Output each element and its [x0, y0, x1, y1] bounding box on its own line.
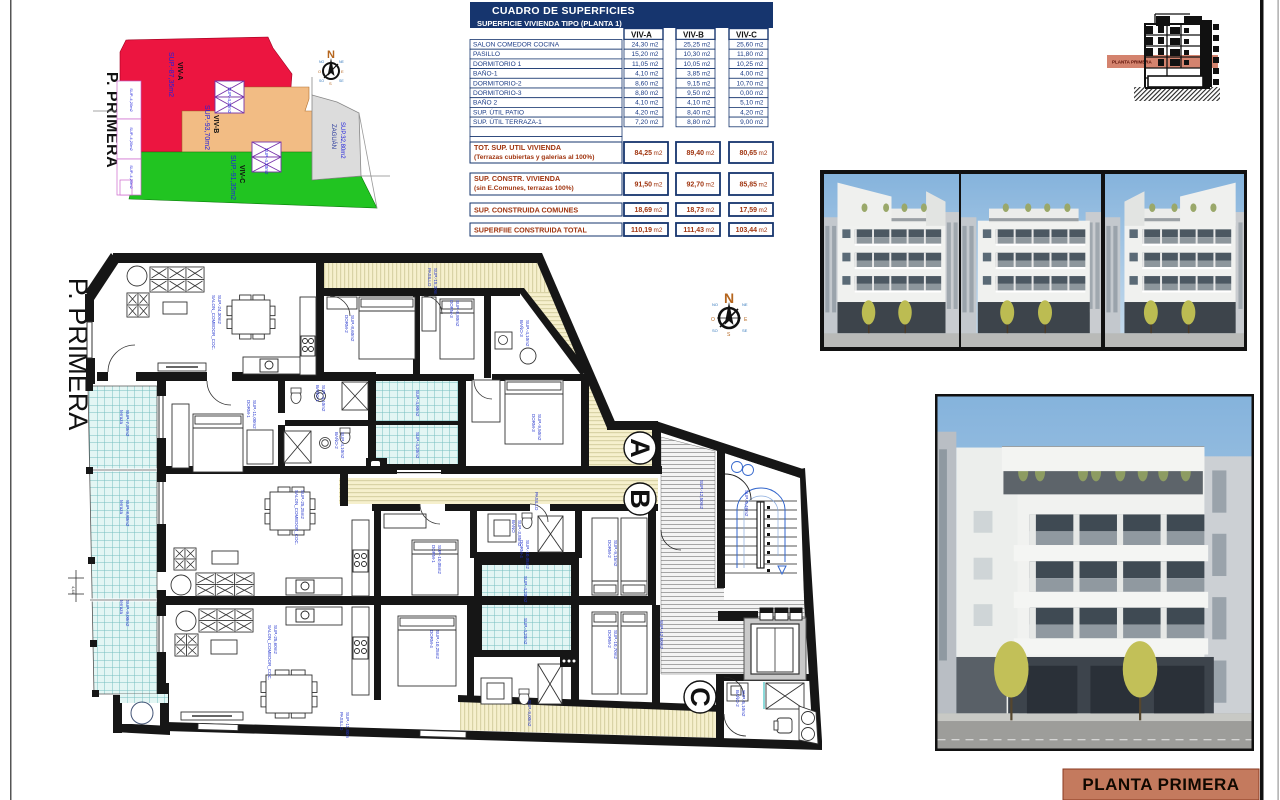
- svg-text:m2: m2: [755, 120, 764, 126]
- svg-text:0,00: 0,00: [740, 90, 753, 97]
- svg-text:SUP. CONSTRUIDA COMUNES: SUP. CONSTRUIDA COMUNES: [474, 206, 578, 215]
- svg-text:DORM-4: DORM-4: [429, 630, 434, 648]
- svg-text:A: A: [625, 438, 655, 458]
- svg-text:m2: m2: [706, 207, 715, 214]
- svg-text:SUP.-8,80m2: SUP.-8,80m2: [455, 300, 460, 327]
- svg-text:15,20: 15,20: [631, 51, 648, 58]
- svg-text:BAÑO: BAÑO: [511, 520, 517, 533]
- svg-text:SUP.-9,50m2: SUP.-9,50m2: [537, 414, 542, 441]
- svg-text:SUP.-12,50m2: SUP.-12,50m2: [659, 620, 664, 649]
- svg-text:24,30: 24,30: [631, 42, 648, 49]
- svg-text:SUP.-8,60m2: SUP.-8,60m2: [350, 315, 355, 342]
- svg-text:m2: m2: [706, 227, 715, 234]
- svg-text:BAÑO-2: BAÑO-2: [334, 432, 340, 449]
- svg-text:O: O: [318, 69, 321, 74]
- svg-text:B: B: [625, 489, 655, 509]
- svg-text:SUP.32,80m2: SUP.32,80m2: [339, 122, 345, 159]
- svg-text:18,69: 18,69: [634, 207, 652, 214]
- svg-text:m2: m2: [702, 43, 711, 49]
- svg-text:DORM-1: DORM-1: [246, 400, 251, 418]
- svg-text:m2: m2: [650, 62, 659, 68]
- svg-text:VIV-A: VIV-A: [631, 31, 652, 40]
- svg-text:4,00: 4,00: [740, 71, 753, 78]
- svg-text:BAÑO-1: BAÑO-1: [473, 69, 498, 78]
- svg-text:m2: m2: [702, 52, 711, 58]
- svg-text:80,65: 80,65: [739, 150, 757, 157]
- svg-text:m2: m2: [702, 62, 711, 68]
- svg-text:m2: m2: [650, 101, 659, 107]
- svg-text:SUP.-93,70m2: SUP.-93,70m2: [203, 105, 210, 150]
- svg-text:9,00: 9,00: [740, 119, 753, 126]
- svg-text:SO: SO: [319, 79, 324, 83]
- svg-text:m2: m2: [759, 227, 768, 234]
- svg-text:SUP.-10,05m2: SUP.-10,05m2: [437, 545, 442, 574]
- svg-text:11,05: 11,05: [632, 61, 648, 68]
- svg-text:NE: NE: [742, 302, 748, 307]
- svg-text:PLANTA PRIMERA: PLANTA PRIMERA: [1082, 775, 1239, 794]
- svg-text:VIV-C: VIV-C: [238, 165, 245, 183]
- svg-text:SUP.-4,20m2: SUP.-4,20m2: [227, 87, 232, 114]
- svg-text:m2: m2: [650, 91, 659, 97]
- svg-text:SUP.-25,25m2: SUP.-25,25m2: [300, 490, 305, 519]
- svg-text:SUP.-4,10m2: SUP.-4,10m2: [340, 432, 345, 459]
- svg-text:m2: m2: [755, 110, 764, 116]
- svg-text:SUP.-11,80m: SUP.-11,80m: [345, 712, 350, 738]
- svg-text:(Terrazas cubiertas y galerias: (Terrazas cubiertas y galerias al 100%): [474, 154, 594, 161]
- svg-text:m2: m2: [755, 62, 764, 68]
- svg-text:111,43: 111,43: [683, 227, 704, 234]
- svg-text:m2: m2: [650, 72, 659, 78]
- svg-text:m2: m2: [759, 150, 768, 157]
- svg-text:m2: m2: [702, 110, 711, 116]
- svg-text:SUP.-5,10m2: SUP.-5,10m2: [741, 690, 746, 717]
- svg-text:VIV-B: VIV-B: [212, 115, 219, 133]
- svg-text:DORM-2: DORM-2: [607, 540, 612, 558]
- svg-text:SUP.-24,30m2: SUP.-24,30m2: [217, 295, 222, 324]
- svg-text:BAÑO-3: BAÑO-3: [519, 320, 525, 337]
- svg-text:E: E: [341, 69, 344, 74]
- svg-text:m2: m2: [759, 207, 768, 214]
- svg-text:m2: m2: [654, 207, 663, 214]
- svg-text:VIV-A: VIV-A: [176, 62, 183, 80]
- svg-text:SUP.-87,35m2: SUP.-87,35m2: [167, 52, 174, 97]
- svg-text:m2: m2: [654, 150, 663, 157]
- svg-text:4,10: 4,10: [635, 100, 648, 107]
- svg-text:ZAGUÁN: ZAGUÁN: [330, 124, 337, 149]
- svg-text:SO: SO: [712, 328, 718, 333]
- svg-text:SUP.-9,15m2: SUP.-9,15m2: [613, 540, 618, 567]
- svg-text:DORM-3: DORM-3: [449, 300, 454, 318]
- svg-text:CUADRO DE SUPERFICIES: CUADRO DE SUPERFICIES: [492, 5, 635, 17]
- svg-text:BAÑO 2: BAÑO 2: [473, 98, 498, 107]
- svg-text:84,25: 84,25: [634, 150, 652, 157]
- svg-text:SUP. CONSTR. VIVIENDA: SUP. CONSTR. VIVIENDA: [474, 174, 560, 183]
- svg-text:m2: m2: [702, 120, 711, 126]
- svg-text:SUPERFIIE CONSTRUIDA TOTAL: SUPERFIIE CONSTRUIDA TOTAL: [474, 226, 587, 235]
- svg-text:DORM-3: DORM-3: [531, 414, 536, 432]
- svg-text:NE: NE: [339, 60, 345, 64]
- svg-text:SUP.-4,20m2: SUP.-4,20m2: [129, 165, 134, 189]
- svg-text:m2: m2: [650, 120, 659, 126]
- svg-text:10,25: 10,25: [736, 61, 753, 68]
- svg-text:SUP.-10,70m2: SUP.-10,70m2: [613, 630, 618, 659]
- svg-text:DORM-2: DORM-2: [344, 315, 349, 333]
- svg-text:3,85: 3,85: [687, 71, 700, 78]
- svg-text:85,85: 85,85: [739, 182, 757, 189]
- svg-text:DORMITORIO 1: DORMITORIO 1: [473, 61, 522, 68]
- svg-text:9,15: 9,15: [687, 80, 700, 87]
- svg-text:8,60: 8,60: [635, 80, 648, 87]
- svg-text:10,30: 10,30: [683, 51, 700, 58]
- svg-text:m2: m2: [650, 81, 659, 87]
- svg-text:SUPERFICIE VIVIENDA TIPO (PLA: SUPERFICIE VIVIENDA TIPO (PLANTA 1): [477, 19, 622, 28]
- svg-text:m2: m2: [702, 101, 711, 107]
- svg-text:SUP.-91,35m2: SUP.-91,35m2: [229, 155, 236, 200]
- svg-text:SUP.-8,80m2: SUP.-8,80m2: [125, 500, 130, 527]
- svg-text:8,40: 8,40: [687, 109, 700, 116]
- svg-text:SUP.-4,20m2: SUP.-4,20m2: [129, 88, 134, 112]
- svg-text:10,70: 10,70: [736, 80, 753, 87]
- svg-text:SUP.-4,20m2: SUP.-4,20m2: [264, 148, 269, 175]
- svg-text:SUP.-4,20m2: SUP.-4,20m2: [129, 127, 134, 151]
- svg-text:m2: m2: [755, 72, 764, 78]
- svg-text:SUP.-9,00m2: SUP.-9,00m2: [125, 600, 130, 627]
- svg-text:SUP. ÚTIL TERRAZA-1: SUP. ÚTIL TERRAZA-1: [473, 117, 542, 126]
- svg-text:SUP. ÚTIL PATIO: SUP. ÚTIL PATIO: [473, 107, 524, 116]
- svg-text:SUP.-15,30m: SUP.-15,30m: [433, 268, 438, 295]
- svg-text:SUP.-12,50m2: SUP.-12,50m2: [699, 480, 704, 509]
- svg-text:18,73: 18,73: [686, 207, 704, 214]
- svg-text:PASILLO: PASILLO: [339, 712, 344, 731]
- svg-text:m2: m2: [650, 52, 659, 58]
- svg-text:terraza: terraza: [119, 600, 124, 615]
- svg-text:SUP.-5,46m2: SUP.-5,46m2: [744, 490, 749, 517]
- svg-text:TOT. SUP. UTIL VIVIENDA: TOT. SUP. UTIL VIVIENDA: [474, 143, 561, 152]
- svg-text:4,44: 4,44: [71, 586, 76, 595]
- svg-text:PASILLO: PASILLO: [473, 51, 500, 58]
- svg-text:SE: SE: [339, 79, 344, 83]
- svg-text:DORM-1: DORM-1: [431, 545, 436, 563]
- svg-text:4,10: 4,10: [635, 71, 648, 78]
- svg-text:SUP.-25,60m2: SUP.-25,60m2: [273, 625, 278, 654]
- svg-text:SUP.-7,20m2: SUP.-7,20m2: [125, 410, 130, 437]
- svg-text:VIV-B: VIV-B: [683, 31, 704, 40]
- svg-text:89,40: 89,40: [686, 150, 704, 157]
- svg-text:m2: m2: [755, 101, 764, 107]
- svg-text:5,10: 5,10: [740, 100, 753, 107]
- svg-text:SUP.-4,20m2: SUP.-4,20m2: [523, 618, 528, 645]
- svg-text:SUP.-4,10m2: SUP.-4,10m2: [321, 385, 326, 412]
- svg-text:m2: m2: [706, 182, 715, 189]
- svg-text:PASILLO: PASILLO: [427, 268, 432, 287]
- svg-text:SUP.-9,00m2: SUP.-9,00m2: [527, 700, 532, 727]
- svg-text:SUP.-4,20m2: SUP.-4,20m2: [415, 432, 420, 459]
- svg-text:SUP.-3,85m2: SUP.-3,85m2: [517, 520, 522, 547]
- svg-text:NO: NO: [712, 302, 718, 307]
- svg-text:SUP.-10,05m2: SUP.-10,05m2: [525, 540, 530, 569]
- svg-text:8,80: 8,80: [687, 119, 700, 126]
- svg-text:9,50: 9,50: [687, 90, 700, 97]
- svg-text:11,80: 11,80: [737, 51, 753, 58]
- svg-text:DORM-2: DORM-2: [607, 630, 612, 648]
- svg-text:SUP.-4,90m2: SUP.-4,90m2: [415, 390, 420, 417]
- svg-text:4,20: 4,20: [740, 109, 753, 116]
- svg-text:25,60: 25,60: [736, 42, 753, 49]
- svg-text:SUP.-10,25m2: SUP.-10,25m2: [435, 630, 440, 659]
- svg-text:NO: NO: [319, 60, 325, 64]
- svg-text:4,20: 4,20: [635, 109, 648, 116]
- svg-text:25,25: 25,25: [683, 42, 700, 49]
- svg-text:m2: m2: [755, 81, 764, 87]
- svg-text:m2: m2: [755, 91, 764, 97]
- svg-text:SUP.-4,10m2: SUP.-4,10m2: [525, 320, 530, 347]
- svg-text:m2: m2: [650, 43, 659, 49]
- svg-text:SALON_COMEDOR_COC.: SALON_COMEDOR_COC.: [294, 490, 299, 545]
- svg-text:4,10: 4,10: [687, 100, 700, 107]
- svg-text:O: O: [711, 317, 715, 323]
- svg-text:m2: m2: [755, 52, 764, 58]
- svg-text:m2: m2: [654, 227, 663, 234]
- svg-text:7,20: 7,20: [635, 119, 648, 126]
- svg-text:8,80: 8,80: [635, 90, 648, 97]
- svg-text:VIV-C: VIV-C: [736, 31, 757, 40]
- svg-text:m2: m2: [702, 72, 711, 78]
- svg-text:BAÑO-2: BAÑO-2: [735, 690, 741, 707]
- svg-text:110,19: 110,19: [631, 227, 652, 234]
- svg-text:BAÑO-1: BAÑO-1: [315, 385, 321, 402]
- svg-text:m2: m2: [702, 81, 711, 87]
- svg-text:C: C: [685, 687, 715, 707]
- svg-text:m2: m2: [650, 110, 659, 116]
- svg-text:(sin E.Comunes, terrazas 100%): (sin E.Comunes, terrazas 100%): [474, 185, 574, 192]
- svg-text:PLANTA PRIMERA: PLANTA PRIMERA: [1112, 60, 1152, 65]
- svg-text:92,70: 92,70: [686, 182, 704, 189]
- svg-text:SALON_COMEDOR_COC.: SALON_COMEDOR_COC.: [211, 295, 216, 350]
- svg-text:S: S: [329, 81, 332, 86]
- svg-text:terraza: terraza: [119, 500, 124, 515]
- svg-text:terraza: terraza: [119, 410, 124, 425]
- svg-text:PASILLO: PASILLO: [534, 492, 539, 511]
- svg-text:m2: m2: [702, 91, 711, 97]
- svg-text:SE: SE: [742, 328, 748, 333]
- svg-text:SALON COMEDOR COCINA: SALON COMEDOR COCINA: [473, 42, 560, 49]
- svg-text:m2: m2: [755, 43, 764, 49]
- svg-text:SUP.-4,20m2: SUP.-4,20m2: [523, 576, 528, 603]
- svg-text:DORMITORIO-3: DORMITORIO-3: [473, 90, 522, 97]
- svg-text:DORMITORIO-2: DORMITORIO-2: [473, 80, 522, 87]
- svg-text:10,05: 10,05: [683, 61, 700, 68]
- svg-text:SUP.-11,00m2: SUP.-11,00m2: [252, 400, 257, 429]
- svg-text:SALON_COMEDOR_COC.: SALON_COMEDOR_COC.: [267, 625, 272, 680]
- svg-text:91,50: 91,50: [634, 182, 652, 189]
- svg-text:m2: m2: [706, 150, 715, 157]
- svg-text:17,59: 17,59: [739, 207, 757, 214]
- svg-text:m2: m2: [654, 182, 663, 189]
- svg-text:m2: m2: [759, 182, 768, 189]
- svg-text:103,44: 103,44: [736, 227, 758, 234]
